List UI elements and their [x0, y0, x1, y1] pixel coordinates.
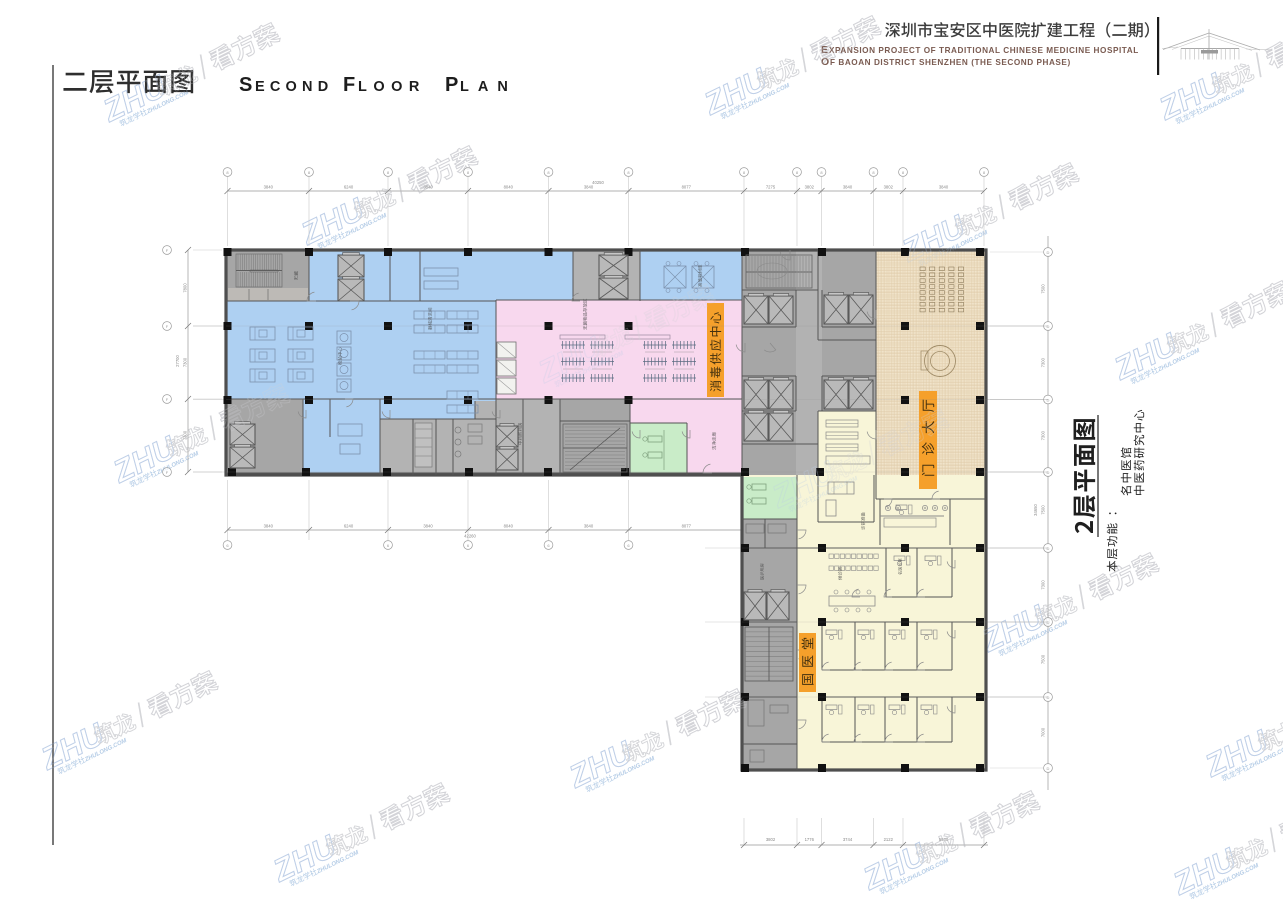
svg-text:7275: 7275	[766, 185, 776, 190]
svg-text:7800: 7800	[183, 283, 188, 293]
svg-text:1776: 1776	[805, 837, 815, 842]
svg-text:D: D	[1047, 324, 1050, 329]
svg-text:3744: 3744	[843, 837, 853, 842]
svg-text:3840: 3840	[264, 185, 274, 190]
svg-text:P: P	[445, 74, 458, 96]
svg-text:LOOR: LOOR	[358, 79, 426, 95]
svg-text:D: D	[1047, 695, 1050, 700]
svg-text:8040: 8040	[504, 524, 514, 529]
svg-text:3840: 3840	[264, 524, 274, 529]
svg-text:7000: 7000	[1041, 727, 1046, 737]
svg-text:F: F	[343, 74, 355, 96]
svg-text:7300: 7300	[183, 357, 188, 367]
svg-text:D: D	[1047, 250, 1050, 255]
svg-text:8077: 8077	[682, 524, 692, 529]
svg-text:8040: 8040	[504, 185, 514, 190]
svg-text:42260: 42260	[464, 534, 476, 539]
svg-text:ECOND: ECOND	[255, 79, 333, 95]
svg-text:3840: 3840	[423, 524, 433, 529]
svg-text:3840: 3840	[584, 185, 594, 190]
svg-text:3840: 3840	[584, 524, 594, 529]
svg-text:2122: 2122	[884, 837, 894, 842]
svg-text:D: D	[1047, 470, 1050, 475]
svg-text:F BAOAN DISTRICT SHENZHEN (THE: F BAOAN DISTRICT SHENZHEN (THE SECOND PH…	[830, 58, 1071, 67]
svg-text:40250: 40250	[592, 180, 604, 185]
svg-text:3840: 3840	[843, 185, 853, 190]
svg-text:XPANSION PROJECT OF TRADITIONA: XPANSION PROJECT OF TRADITIONAL CHINESE …	[829, 46, 1139, 55]
svg-text:3802: 3802	[805, 185, 815, 190]
svg-text:7500: 7500	[1041, 284, 1046, 294]
svg-text:S: S	[239, 74, 252, 96]
svg-text:6240: 6240	[344, 524, 354, 529]
svg-text:3802: 3802	[766, 837, 776, 842]
svg-text:34650: 34650	[1033, 504, 1038, 516]
svg-text:8077: 8077	[682, 185, 692, 190]
svg-text:3840: 3840	[939, 185, 949, 190]
svg-text:7300: 7300	[1041, 580, 1046, 590]
svg-text:7300: 7300	[1041, 357, 1046, 367]
svg-text:D: D	[1047, 398, 1050, 403]
svg-text:3802: 3802	[884, 185, 894, 190]
svg-text:7300: 7300	[1041, 430, 1046, 440]
svg-text:6240: 6240	[344, 185, 354, 190]
svg-text:7500: 7500	[1041, 654, 1046, 664]
svg-text:27700: 27700	[175, 355, 180, 367]
svg-text:D: D	[1047, 546, 1050, 551]
svg-text:7500: 7500	[1041, 505, 1046, 515]
svg-text:D: D	[1047, 766, 1050, 771]
svg-text:LAN: LAN	[460, 79, 517, 95]
